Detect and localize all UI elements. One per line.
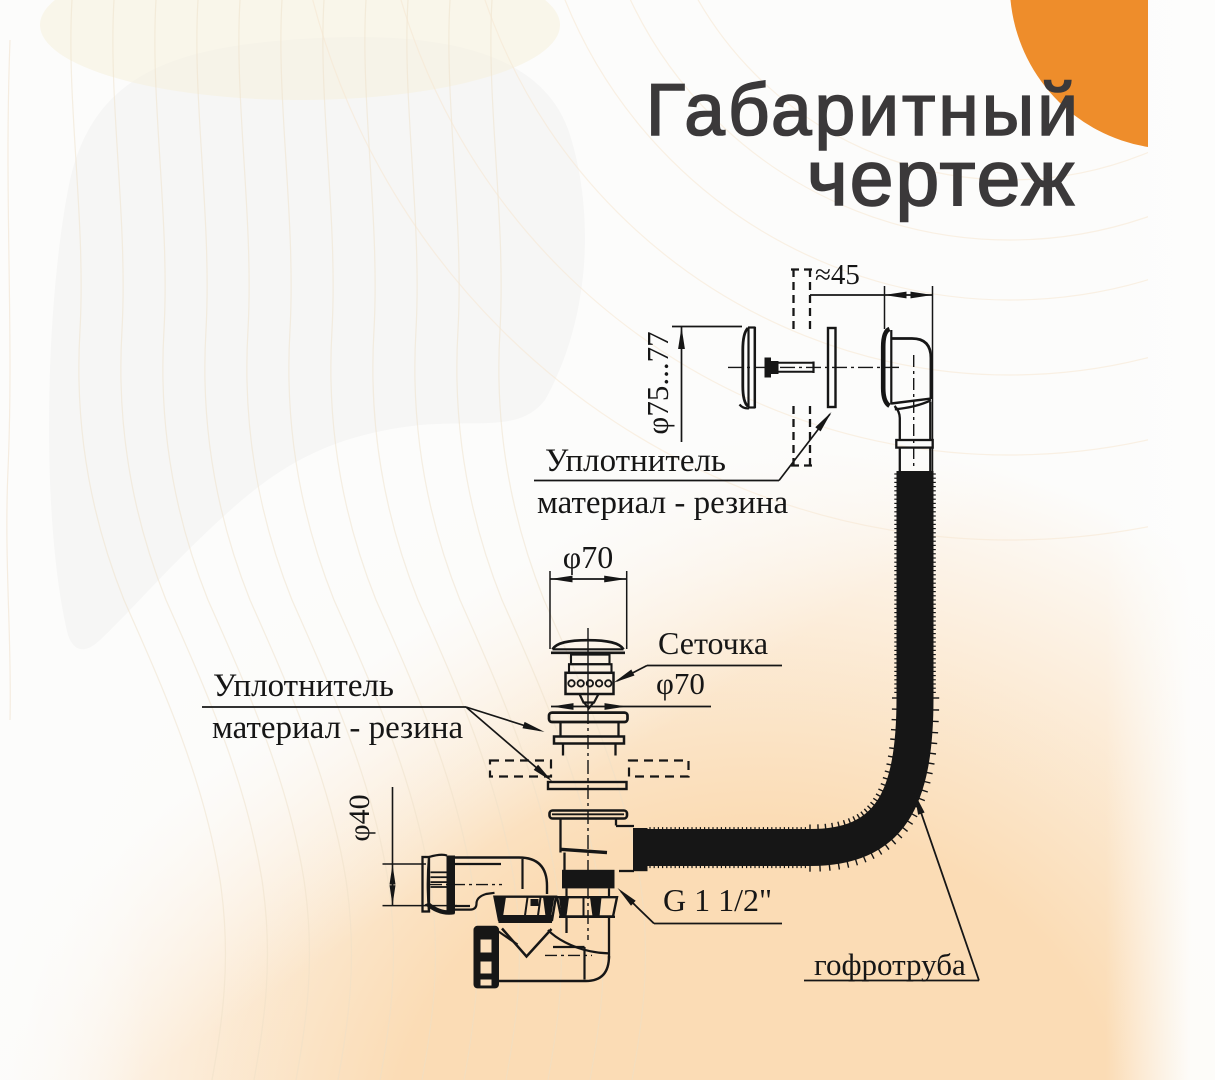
- svg-text:гофротруба: гофротруба: [814, 947, 966, 982]
- svg-text:φ70: φ70: [563, 539, 613, 575]
- svg-text:≈45: ≈45: [815, 259, 860, 291]
- svg-text:Уплотнитель: Уплотнитель: [545, 443, 726, 479]
- svg-text:φ40: φ40: [343, 794, 376, 841]
- svg-text:Уплотнитель: Уплотнитель: [213, 668, 394, 704]
- svg-text:Сеточка: Сеточка: [658, 625, 768, 661]
- svg-text:материал - резина: материал - резина: [212, 710, 463, 746]
- svg-text:G 1 1/2": G 1 1/2": [663, 882, 772, 918]
- svg-text:φ75...77: φ75...77: [640, 331, 675, 434]
- svg-text:φ70: φ70: [656, 666, 705, 701]
- svg-text:материал - резина: материал - резина: [537, 485, 788, 521]
- svg-text:чертеж: чертеж: [807, 133, 1076, 222]
